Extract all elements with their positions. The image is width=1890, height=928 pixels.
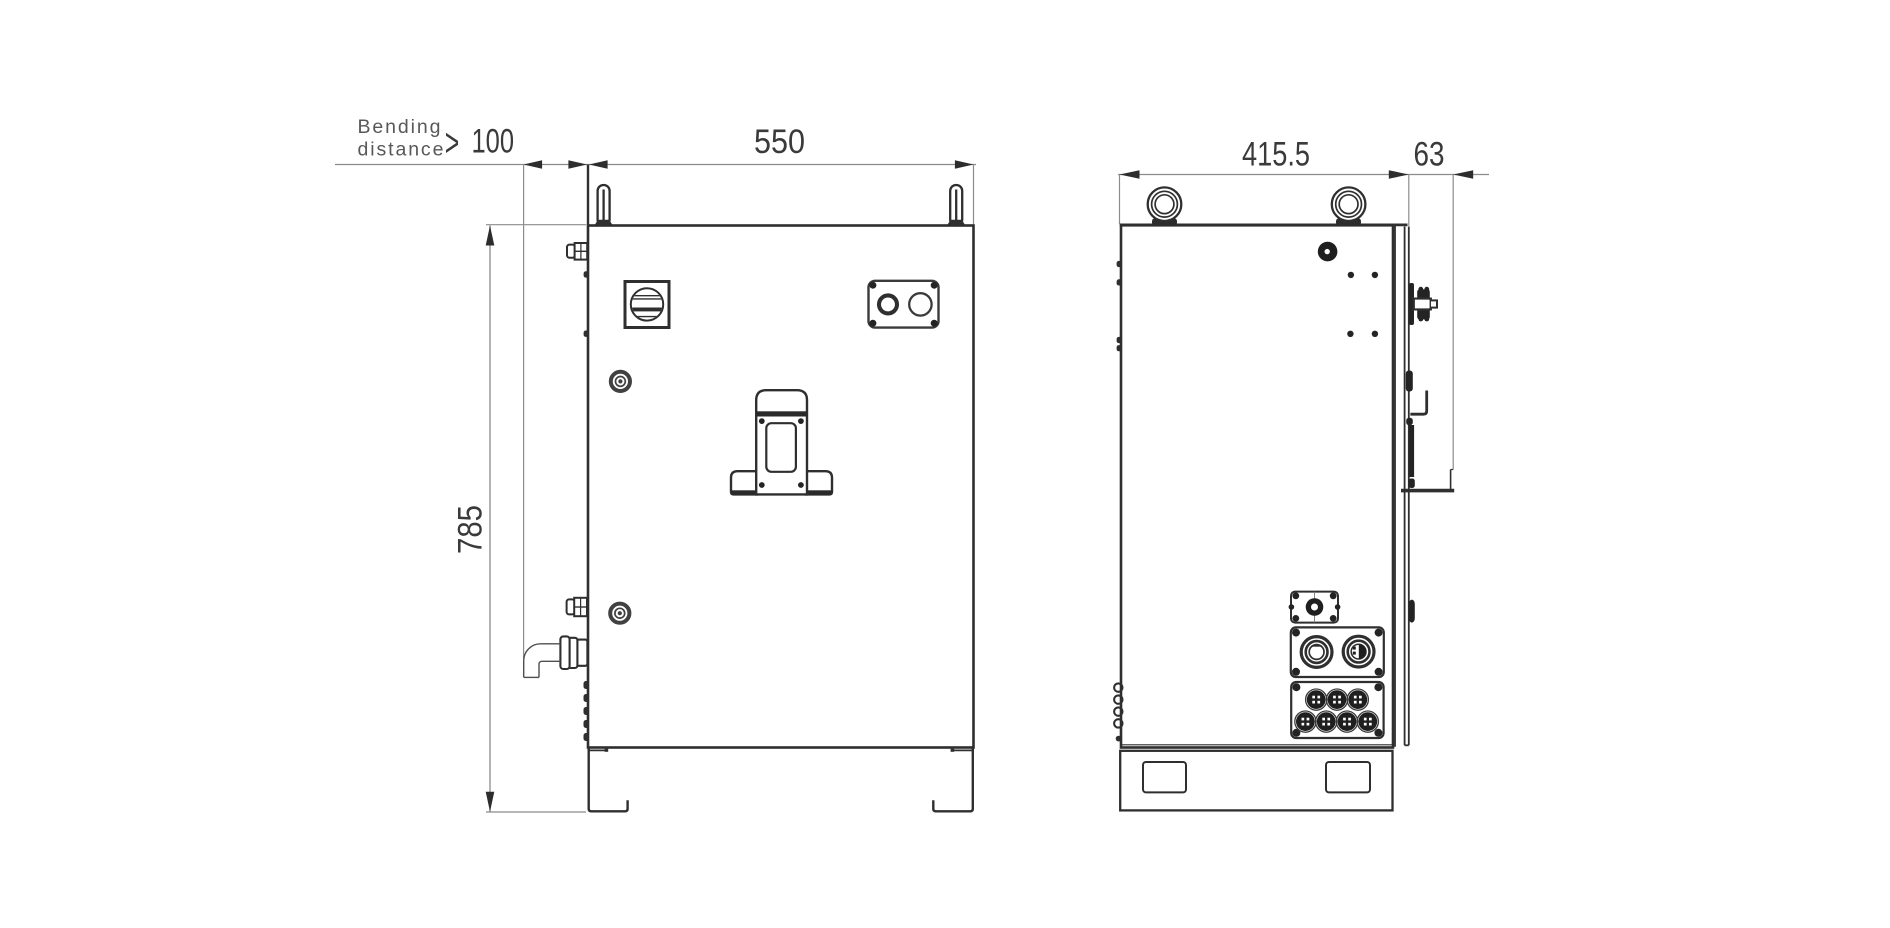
svg-text:100: 100 — [472, 123, 515, 161]
svg-text:415.5: 415.5 — [1242, 136, 1310, 174]
svg-text:785: 785 — [452, 505, 490, 554]
svg-text:Bending: Bending — [358, 116, 443, 138]
svg-text:>: > — [445, 121, 460, 165]
svg-text:distance: distance — [358, 139, 446, 161]
svg-text:63: 63 — [1414, 136, 1445, 174]
svg-text:550: 550 — [754, 123, 805, 161]
